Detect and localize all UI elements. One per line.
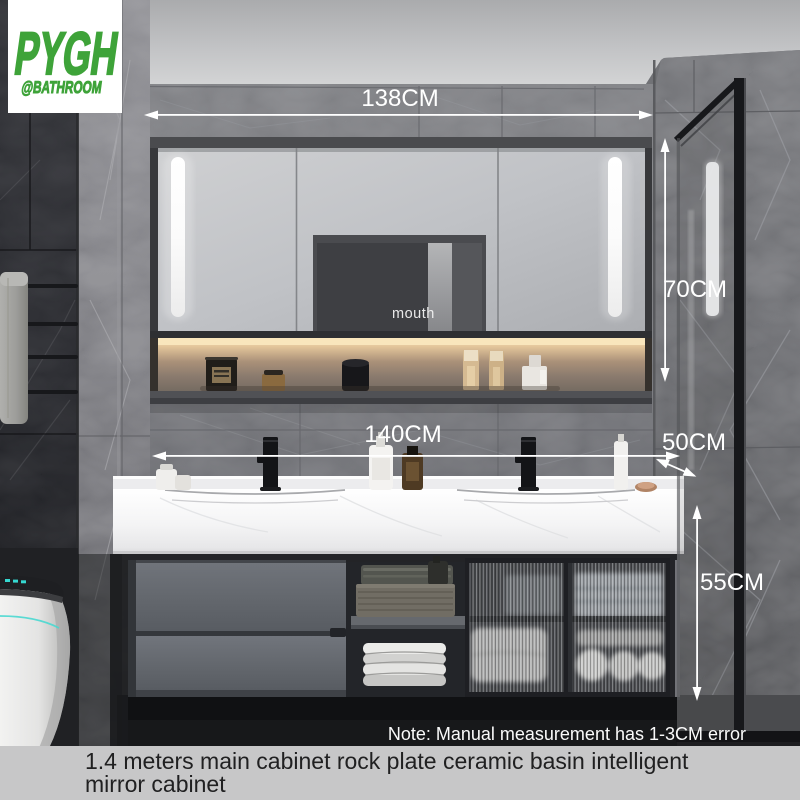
svg-text:140CM: 140CM xyxy=(364,421,441,448)
svg-text:mirror cabinet: mirror cabinet xyxy=(85,771,226,797)
svg-text:50CM: 50CM xyxy=(662,429,726,456)
svg-text:PYGH: PYGH xyxy=(11,19,123,87)
svg-text:Note: Manual measurement has 1: Note: Manual measurement has 1-3CM error xyxy=(388,724,746,744)
svg-text:138CM: 138CM xyxy=(361,85,438,112)
svg-text:@BATHROOM: @BATHROOM xyxy=(20,78,103,97)
svg-text:mouth: mouth xyxy=(392,306,435,322)
svg-text:55CM: 55CM xyxy=(700,569,764,596)
svg-text:70CM: 70CM xyxy=(663,276,727,303)
